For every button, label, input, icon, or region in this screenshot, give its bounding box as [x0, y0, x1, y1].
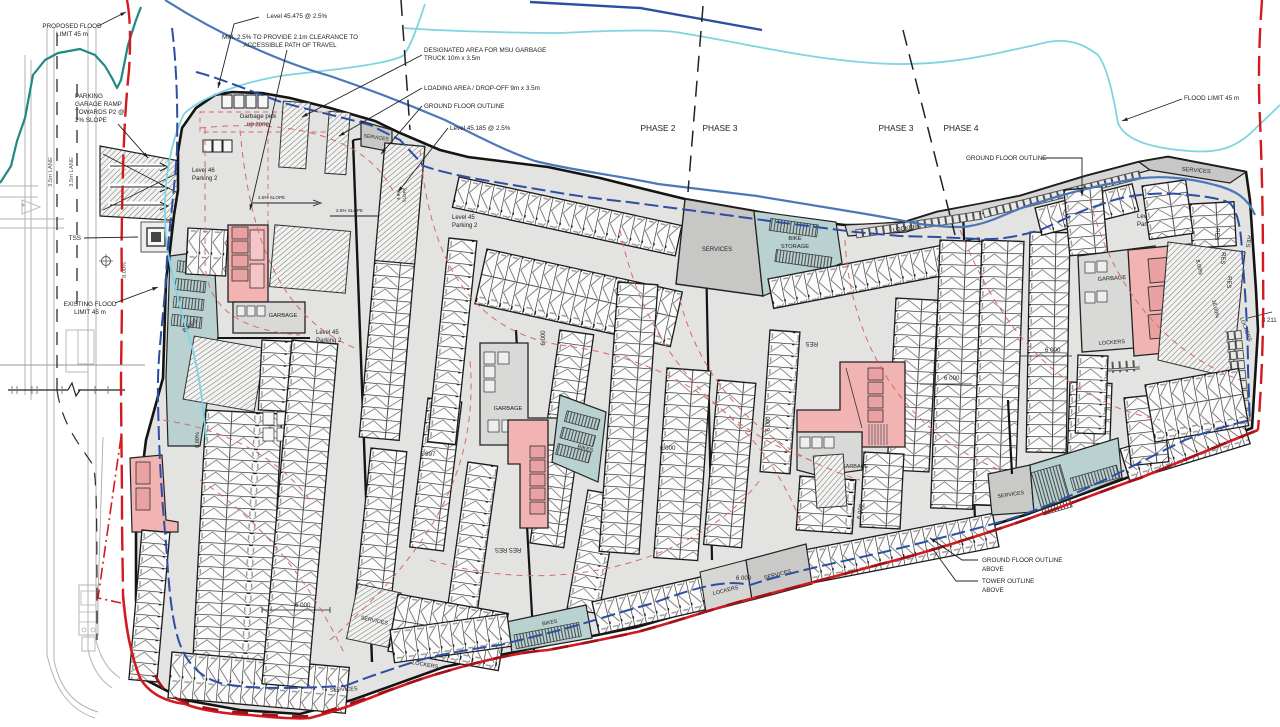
svg-text:6 000: 6 000: [541, 330, 547, 346]
svg-text:up zone: up zone: [247, 121, 270, 128]
svg-text:TOWARDS P2 @: TOWARDS P2 @: [75, 109, 124, 116]
svg-text:6 000: 6 000: [736, 576, 752, 582]
svg-text:3.5m LANE: 3.5m LANE: [69, 157, 75, 187]
svg-text:PHASE 3: PHASE 3: [702, 123, 737, 133]
svg-text:6 000: 6 000: [295, 602, 311, 609]
svg-text:EXISTING FLOOD: EXISTING FLOOD: [64, 301, 117, 308]
svg-text:GROUND FLOOR OUTLINE: GROUND FLOOR OUTLINE: [982, 557, 1062, 564]
svg-text:TSS: TSS: [69, 235, 81, 242]
svg-text:RES: RES: [806, 340, 818, 346]
svg-text:PROPOSED FLOOD: PROPOSED FLOOD: [42, 23, 102, 30]
svg-text:3.5m LANE: 3.5m LANE: [48, 157, 54, 187]
svg-text:LOADING AREA / DROP-OFF 9m x 3: LOADING AREA / DROP-OFF 9m x 3.5m: [424, 85, 540, 92]
svg-text:Level 45: Level 45: [316, 330, 339, 336]
svg-text:6 000: 6 000: [944, 375, 960, 382]
svg-text:ABOVE: ABOVE: [982, 587, 1004, 594]
svg-text:MIN. 2.5% TO PROVIDE 2.1m CLEA: MIN. 2.5% TO PROVIDE 2.1m CLEARANCE TO: [222, 34, 358, 41]
svg-text:2.5% SLOPE: 2.5% SLOPE: [258, 195, 285, 200]
svg-text:5 997: 5 997: [420, 451, 436, 458]
svg-text:Level 45.475 @ 2.5%: Level 45.475 @ 2.5%: [267, 13, 328, 20]
svg-text:FLOOD LIMIT 45 m: FLOOD LIMIT 45 m: [1184, 95, 1239, 102]
svg-text:Level 45: Level 45: [452, 215, 475, 221]
svg-text:6 000: 6 000: [660, 445, 676, 452]
svg-text:PHASE 4: PHASE 4: [943, 123, 978, 133]
svg-text:Level 46: Level 46: [192, 168, 215, 174]
svg-text:TRUCK 10m x 3.5m: TRUCK 10m x 3.5m: [424, 55, 480, 62]
svg-text:2% SLOPE: 2% SLOPE: [75, 117, 107, 124]
svg-text:GARBAGE: GARBAGE: [841, 464, 869, 470]
svg-text:RES: RES: [1219, 252, 1226, 265]
svg-text:TOWER OUTLINE: TOWER OUTLINE: [982, 578, 1034, 585]
svg-text:PHASE 3: PHASE 3: [878, 123, 913, 133]
svg-text:SERVICES: SERVICES: [702, 247, 732, 253]
svg-text:Parking 2: Parking 2: [452, 223, 478, 229]
svg-text:RES: RES: [1213, 228, 1220, 241]
svg-text:GARAGE RAMP: GARAGE RAMP: [75, 101, 122, 108]
svg-text:LIMIT 45 m: LIMIT 45 m: [56, 31, 88, 38]
svg-text:LIMIT 45 m: LIMIT 45 m: [74, 309, 106, 316]
svg-text:6 000: 6 000: [1045, 347, 1061, 354]
svg-text:SLOPE: SLOPE: [402, 187, 408, 202]
svg-text:STORAGE: STORAGE: [781, 244, 809, 250]
svg-text:3 211: 3 211: [1262, 318, 1277, 324]
svg-text:RES: RES: [1225, 276, 1232, 289]
svg-text:DESIGNATED AREA FOR MSU GARBAG: DESIGNATED AREA FOR MSU GARBAGE: [424, 47, 546, 54]
svg-text:ACCESSIBLE PATH OF TRAVEL: ACCESSIBLE PATH OF TRAVEL: [243, 42, 337, 49]
svg-text:GARBAGE: GARBAGE: [269, 313, 298, 319]
svg-text:ABOVE: ABOVE: [982, 566, 1004, 573]
svg-text:PHASE 2: PHASE 2: [640, 123, 675, 133]
svg-text:GROUND FLOOR OUTLINE: GROUND FLOOR OUTLINE: [966, 155, 1046, 162]
svg-text:Level 45.185 @ 2.5%: Level 45.185 @ 2.5%: [450, 125, 511, 132]
svg-text:2.5% SLOPE: 2.5% SLOPE: [336, 208, 363, 213]
svg-text:RES RES: RES RES: [495, 546, 521, 552]
svg-text:8.00%: 8.00%: [195, 432, 201, 448]
svg-text:PARKING: PARKING: [75, 93, 103, 100]
svg-text:BIKE: BIKE: [788, 236, 801, 242]
svg-text:6 000: 6 000: [766, 416, 772, 432]
svg-text:GARBAGE: GARBAGE: [494, 406, 523, 412]
svg-text:GROUND FLOOR OUTLINE: GROUND FLOOR OUTLINE: [424, 103, 504, 110]
